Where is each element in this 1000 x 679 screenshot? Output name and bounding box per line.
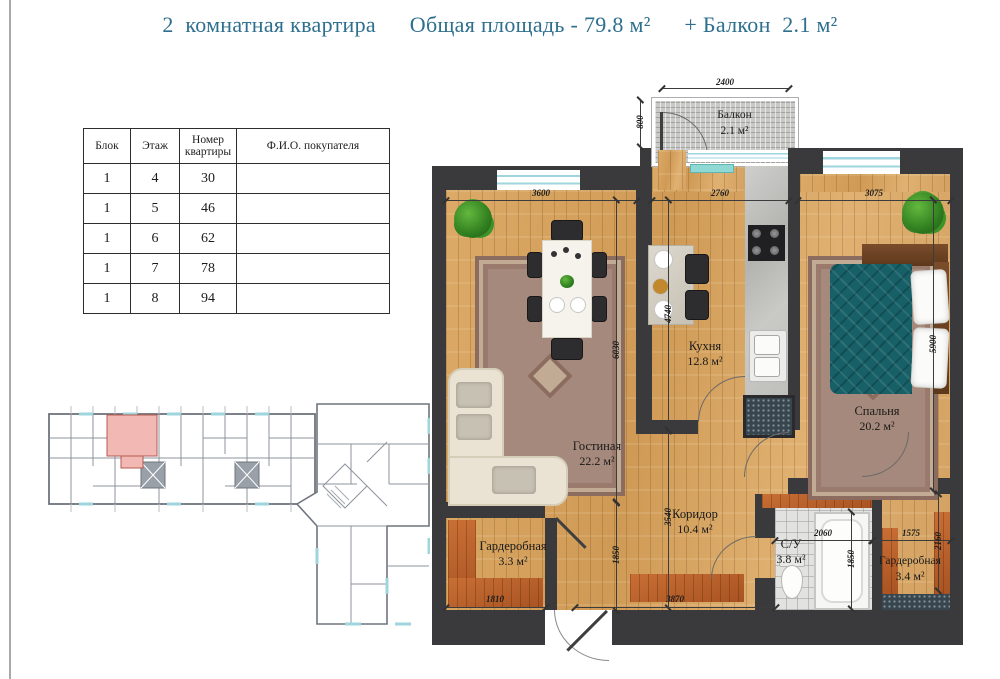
buyers-table: Блок Этаж Номер квартиры Ф.И.О. покупате… bbox=[83, 128, 390, 314]
dim-kitchen-height: 4740 bbox=[663, 293, 673, 335]
cell-block: 1 bbox=[84, 254, 131, 284]
cell-buyer bbox=[237, 164, 390, 194]
cell-block: 1 bbox=[84, 224, 131, 254]
table-plant bbox=[560, 275, 574, 288]
cell-buyer bbox=[237, 224, 390, 254]
dim-line bbox=[775, 540, 872, 541]
plate bbox=[570, 297, 586, 313]
title-rooms: 2 комнатная квартира bbox=[162, 12, 376, 37]
stove bbox=[748, 225, 785, 261]
apartment-sale-sheet: { "title": { "left": "2 комнатная кварти… bbox=[0, 0, 1000, 679]
cell-floor: 8 bbox=[131, 284, 180, 314]
table-row: 1 5 46 bbox=[84, 194, 390, 224]
dim-bedroom-width: 3075 bbox=[844, 188, 904, 198]
plate bbox=[549, 297, 565, 313]
room-area: 3.3 м² bbox=[463, 554, 563, 570]
cell-floor: 6 bbox=[131, 224, 180, 254]
dim-wardrobe2-height: 2160 bbox=[933, 520, 943, 562]
col-floor: Этаж bbox=[131, 129, 180, 164]
cell-floor: 5 bbox=[131, 194, 180, 224]
cell-block: 1 bbox=[84, 284, 131, 314]
sofa-pillow bbox=[456, 382, 492, 408]
dining-chair bbox=[551, 220, 583, 242]
burner bbox=[770, 246, 779, 255]
wall-bath-left-lower bbox=[755, 578, 775, 610]
col-buyer-name: Ф.И.О. покупателя bbox=[237, 129, 390, 164]
page-left-border bbox=[9, 0, 11, 679]
dim-hall-left: 1850 bbox=[611, 534, 621, 576]
wall-bath-wardrobe bbox=[872, 494, 882, 610]
cell-buyer bbox=[237, 284, 390, 314]
dim-living-height: 6030 bbox=[611, 329, 621, 371]
burner bbox=[752, 229, 761, 238]
dim-wardrobe1-width: 1810 bbox=[465, 594, 525, 604]
bedroom-label: Спальня 20.2 м² bbox=[827, 403, 927, 435]
kitchen-chair bbox=[685, 290, 709, 320]
dim-corridor-width: 3870 bbox=[645, 594, 705, 604]
table-row: 1 8 94 bbox=[84, 284, 390, 314]
dining-chair bbox=[527, 296, 543, 322]
cell-apt: 30 bbox=[180, 164, 237, 194]
window-sill bbox=[690, 164, 734, 173]
living-label: Гостиная 22.2 м² bbox=[547, 438, 647, 470]
room-area: 12.8 м² bbox=[655, 354, 755, 370]
cell-buyer bbox=[237, 254, 390, 284]
sink-basin bbox=[754, 335, 780, 355]
wardrobe2-shelf bbox=[882, 594, 950, 610]
room-area: 22.2 м² bbox=[547, 454, 647, 470]
col-block: Блок bbox=[84, 129, 131, 164]
room-area: 3.8 м² bbox=[763, 552, 819, 568]
kitchen-label: Кухня 12.8 м² bbox=[655, 338, 755, 370]
balcony-glazing bbox=[688, 150, 792, 162]
bed-pillow bbox=[910, 269, 950, 325]
burner bbox=[770, 229, 779, 238]
sink-basin bbox=[754, 357, 780, 377]
table-header-row: Блок Этаж Номер квартиры Ф.И.О. покупате… bbox=[84, 129, 390, 164]
sofa-pillow bbox=[492, 466, 536, 494]
room-name: Коридор bbox=[645, 506, 745, 522]
bedroom-plant bbox=[902, 192, 944, 234]
dim-line bbox=[798, 200, 950, 201]
dim-line bbox=[575, 607, 775, 608]
page-title: 2 комнатная квартира Общая площадь - 79.… bbox=[0, 12, 1000, 38]
dim-line bbox=[446, 200, 636, 201]
dim-kitchen-width: 2760 bbox=[690, 188, 750, 198]
table-row: 1 6 62 bbox=[84, 224, 390, 254]
room-name: Гардеробная bbox=[463, 538, 563, 554]
decor-dot bbox=[563, 247, 569, 253]
living-window bbox=[497, 170, 580, 190]
burner bbox=[752, 246, 761, 255]
wardrobe2-label: Гардеробная 3.4 м² bbox=[860, 554, 960, 585]
corridor-label: Коридор 10.4 м² bbox=[645, 506, 745, 538]
dining-chair bbox=[551, 338, 583, 360]
table-row: 1 7 78 bbox=[84, 254, 390, 284]
room-name: Гостиная bbox=[547, 438, 647, 454]
dim-balcony-depth: 800 bbox=[635, 101, 645, 143]
dining-chair bbox=[591, 252, 607, 278]
room-area: 3.4 м² bbox=[860, 569, 960, 585]
dim-corridor-height: 3540 bbox=[663, 496, 673, 538]
room-area: 20.2 м² bbox=[827, 419, 927, 435]
room-name: Кухня bbox=[655, 338, 755, 354]
cell-buyer bbox=[237, 194, 390, 224]
building-overview-plan bbox=[45, 398, 430, 630]
dining-chair bbox=[527, 252, 543, 278]
dining-table bbox=[542, 240, 592, 338]
room-name: Балкон bbox=[682, 108, 787, 124]
dim-living-width: 3600 bbox=[511, 188, 571, 198]
decor-dot bbox=[575, 253, 581, 259]
room-name: Спальня bbox=[827, 403, 927, 419]
room-name: Гардеробная bbox=[860, 554, 960, 569]
dim-line bbox=[652, 200, 788, 201]
cell-floor: 7 bbox=[131, 254, 180, 284]
decor-dot bbox=[551, 251, 557, 257]
sofa-pillow bbox=[456, 414, 492, 440]
dim-balcony-width: 2400 bbox=[695, 77, 755, 87]
wardrobe1-label: Гардеробная 3.3 м² bbox=[463, 538, 563, 570]
col-apt-number: Номер квартиры bbox=[180, 129, 237, 164]
cell-apt: 94 bbox=[180, 284, 237, 314]
wall-kitchen-bedroom bbox=[788, 148, 800, 430]
cell-apt: 62 bbox=[180, 224, 237, 254]
plate bbox=[654, 250, 673, 269]
title-balcony-area: + Балкон 2.1 м² bbox=[684, 12, 837, 37]
cell-apt: 78 bbox=[180, 254, 237, 284]
apartment-floor-plan: Балкон 2.1 м² bbox=[430, 88, 965, 666]
dim-wc-width: 2060 bbox=[793, 528, 853, 538]
bedroom-window bbox=[823, 151, 900, 174]
cell-block: 1 bbox=[84, 194, 131, 224]
balcony-door-opening bbox=[658, 150, 686, 190]
living-plant bbox=[454, 200, 492, 238]
dim-bedroom-height: 5900 bbox=[928, 323, 938, 365]
dim-line bbox=[662, 88, 788, 89]
dim-line bbox=[446, 607, 545, 608]
cell-floor: 4 bbox=[131, 164, 180, 194]
table-row: 1 4 30 bbox=[84, 164, 390, 194]
kitchen-chair bbox=[685, 254, 709, 284]
dining-chair bbox=[591, 296, 607, 322]
dim-wardrobe2-width: 1575 bbox=[881, 528, 941, 538]
dim-hall-right: 1850 bbox=[846, 538, 856, 580]
cell-block: 1 bbox=[84, 164, 131, 194]
bed-blanket bbox=[830, 264, 912, 394]
title-total-area: Общая площадь - 79.8 м² bbox=[410, 12, 651, 37]
room-area: 10.4 м² bbox=[645, 522, 745, 538]
cell-apt: 46 bbox=[180, 194, 237, 224]
